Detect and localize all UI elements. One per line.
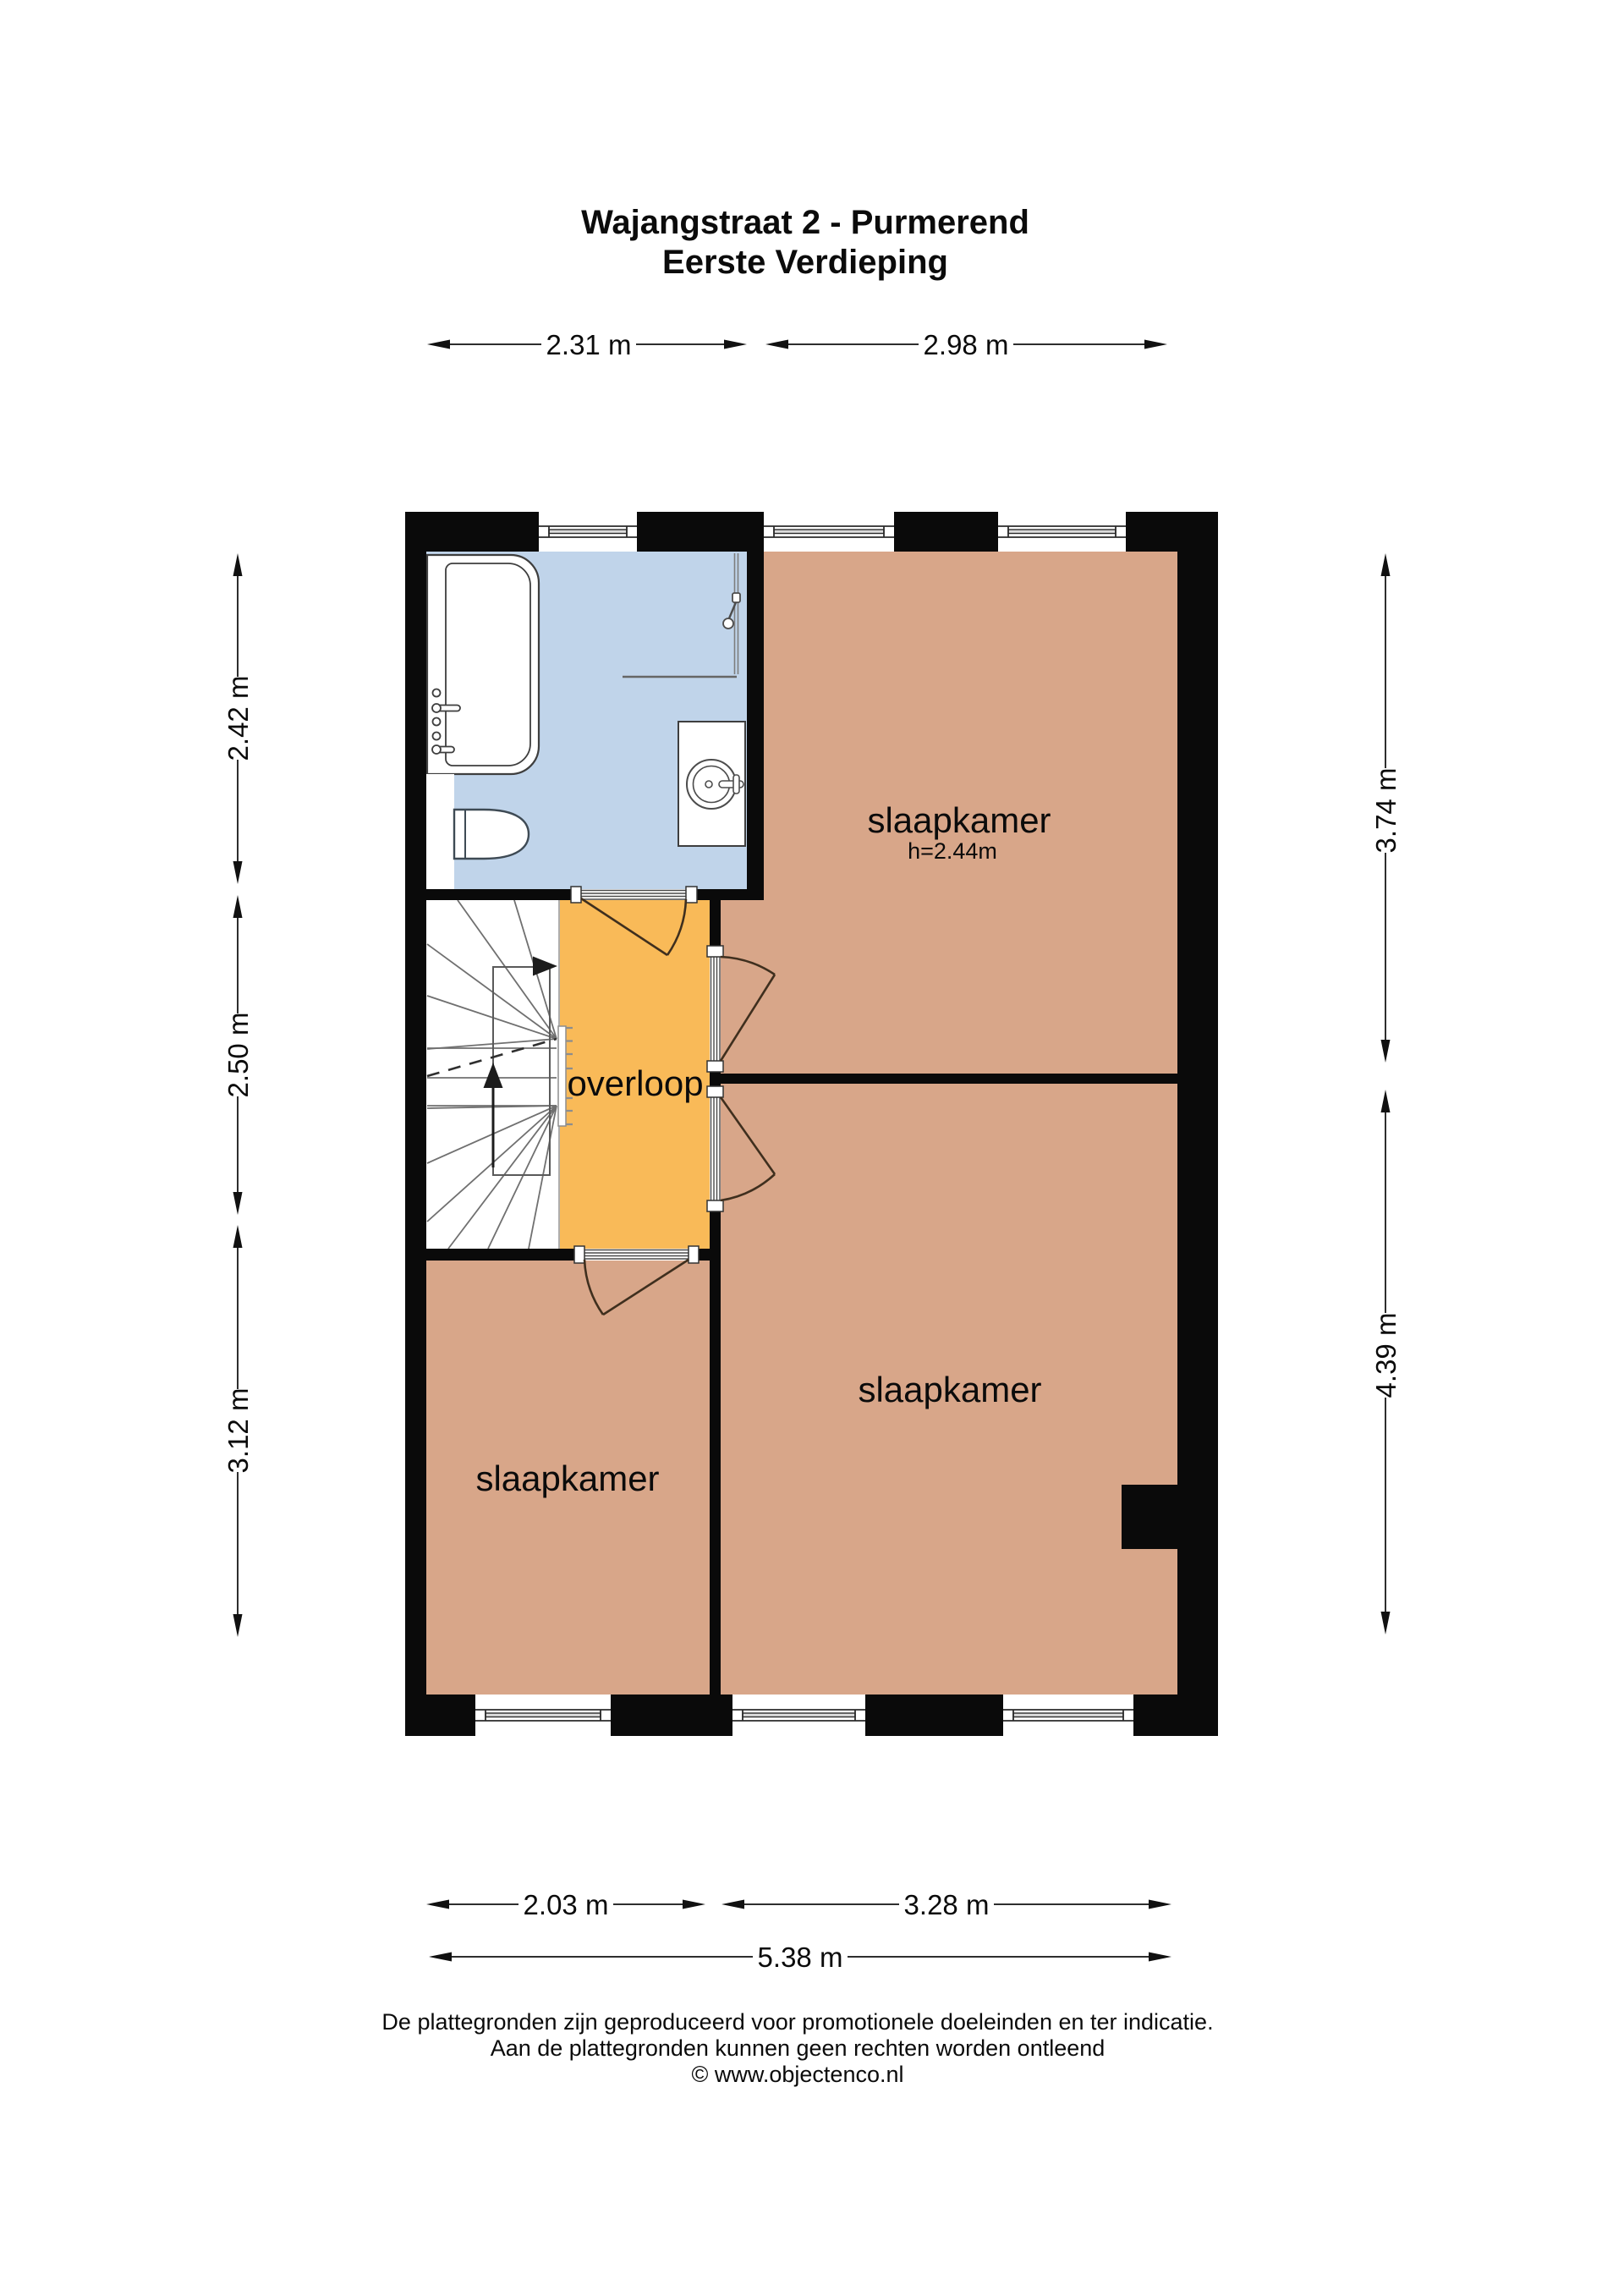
- svg-text:3.74 m: 3.74 m: [1370, 768, 1402, 854]
- svg-text:De plattegronden zijn geproduc: De plattegronden zijn geproduceerd voor …: [381, 2009, 1213, 2035]
- svg-text:3.28 m: 3.28 m: [904, 1889, 990, 1920]
- svg-text:slaapkamer: slaapkamer: [867, 800, 1051, 840]
- svg-text:2.98 m: 2.98 m: [924, 329, 1009, 360]
- svg-text:© www.objectenco.nl: © www.objectenco.nl: [691, 2062, 903, 2087]
- svg-text:2.42 m: 2.42 m: [222, 676, 254, 761]
- svg-text:Wajangstraat 2 - Purmerend: Wajangstraat 2 - Purmerend: [581, 204, 1029, 241]
- svg-text:2.03 m: 2.03 m: [524, 1889, 609, 1920]
- svg-text:slaapkamer: slaapkamer: [858, 1370, 1041, 1409]
- svg-text:3.12 m: 3.12 m: [222, 1388, 254, 1474]
- svg-text:2.50 m: 2.50 m: [222, 1013, 254, 1098]
- svg-text:5.38 m: 5.38 m: [758, 1942, 843, 1973]
- svg-text:h=2.44m: h=2.44m: [908, 838, 997, 864]
- svg-text:overloop: overloop: [567, 1063, 703, 1103]
- svg-text:Eerste Verdieping: Eerste Verdieping: [662, 244, 948, 281]
- svg-text:4.39 m: 4.39 m: [1370, 1313, 1402, 1398]
- svg-text:slaapkamer: slaapkamer: [475, 1458, 659, 1498]
- svg-text:Aan de plattegronden kunnen ge: Aan de plattegronden kunnen geen rechten…: [491, 2035, 1106, 2061]
- svg-text:2.31 m: 2.31 m: [546, 329, 632, 360]
